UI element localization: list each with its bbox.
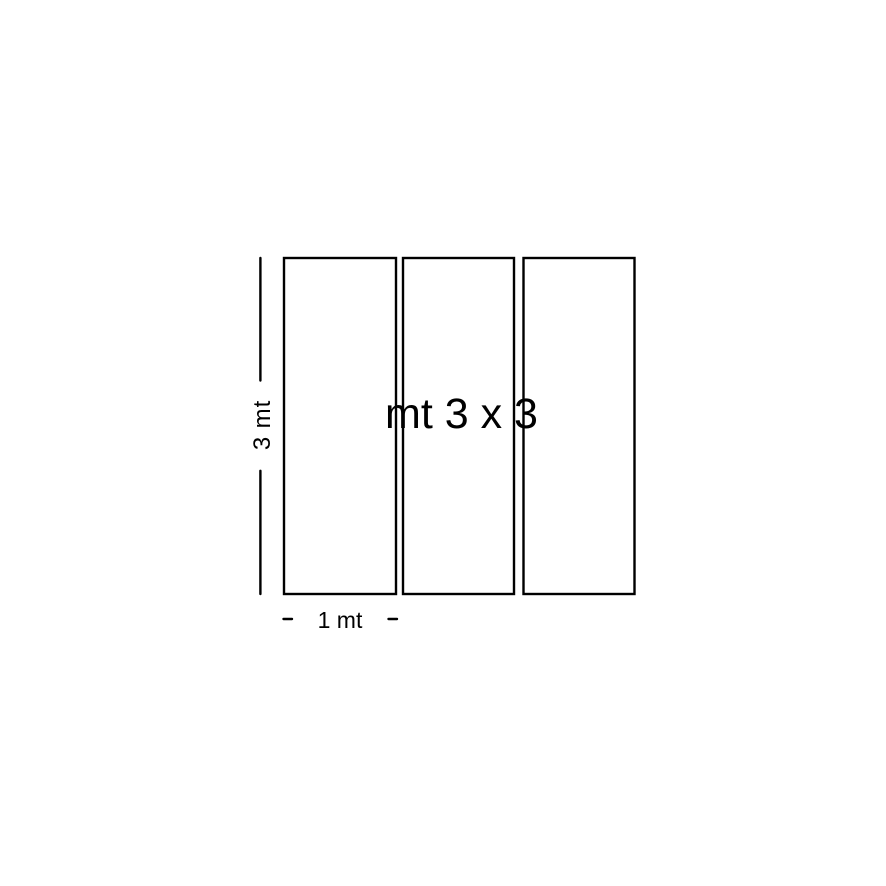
svg-text:1 mt: 1 mt bbox=[318, 607, 363, 633]
svg-text:mt 3 x 3: mt 3 x 3 bbox=[385, 390, 538, 438]
svg-text:3 mt: 3 mt bbox=[249, 400, 276, 450]
